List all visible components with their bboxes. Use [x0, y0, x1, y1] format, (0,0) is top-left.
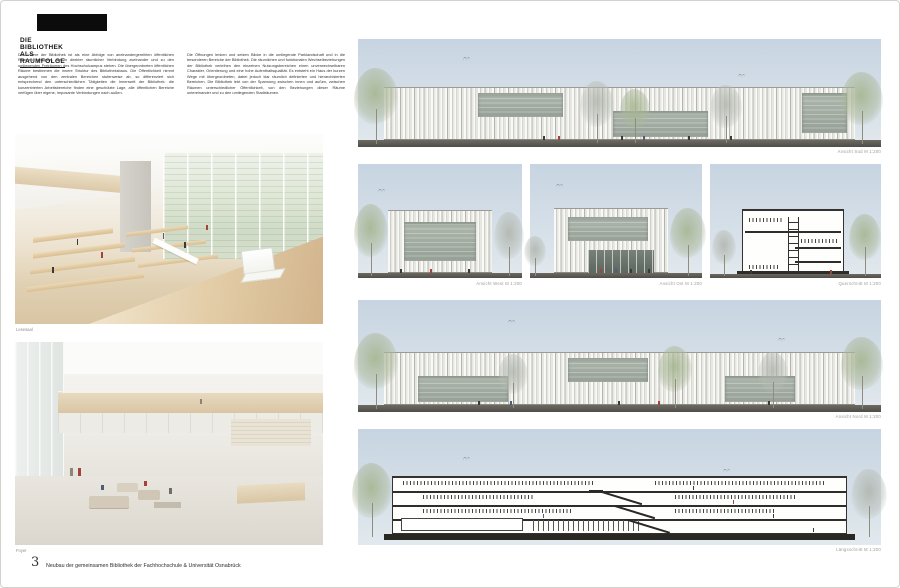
section-building — [392, 476, 847, 534]
armchair — [138, 490, 160, 500]
person-figure — [163, 233, 165, 239]
elevation-ost — [530, 164, 702, 278]
ground — [358, 405, 881, 412]
person-figure — [630, 269, 632, 273]
bird-mark — [556, 184, 563, 187]
entrance-glazing — [588, 250, 654, 273]
shelving-marks — [801, 239, 837, 243]
person-figure — [730, 136, 732, 140]
person-figure — [643, 136, 645, 140]
tree — [658, 346, 692, 408]
tree — [841, 337, 883, 409]
drawing-label: Längsschnitt M 1:200 — [358, 547, 881, 552]
person-figure — [478, 401, 480, 405]
person-figure — [773, 514, 774, 518]
shelving-marks — [423, 495, 533, 499]
floor-slab — [795, 261, 841, 263]
shelving-marks — [655, 481, 825, 485]
person-figure — [200, 399, 202, 404]
glass-band — [404, 222, 476, 261]
shelving-marks — [749, 218, 783, 222]
bird-mark — [463, 457, 470, 460]
intro-column-1: Das Innere der Bibliothek ist als eine A… — [18, 52, 174, 96]
person-figure — [144, 481, 147, 486]
person-figure — [70, 468, 73, 476]
info-counter — [237, 482, 305, 504]
concrete-wall — [120, 161, 151, 252]
person-figure — [813, 528, 814, 532]
tree — [352, 463, 392, 537]
person-figure — [78, 468, 81, 476]
tree — [849, 214, 881, 276]
section-laengs — [358, 429, 881, 545]
bird-mark — [723, 469, 730, 472]
tree — [758, 352, 788, 408]
person-figure — [77, 239, 79, 245]
drawing-label: Ansicht Süd M 1:200 — [358, 149, 881, 154]
person-figure — [400, 269, 402, 273]
tree — [620, 89, 650, 143]
person-figure — [510, 401, 512, 405]
person-figure — [52, 267, 54, 273]
sheet-number: 3 — [31, 555, 39, 570]
presentation-board: DIE BIBLIOTHEK ALS RAUMFOLGE Das Innere … — [0, 0, 900, 588]
person-figure — [658, 401, 660, 405]
tree — [498, 354, 528, 408]
person-figure — [101, 252, 103, 258]
bird-mark — [738, 74, 745, 77]
shelving-marks — [423, 509, 573, 513]
drawing-label: Ansicht West M 1:200 — [358, 281, 522, 286]
coffee-table — [154, 502, 182, 508]
floor-slab — [795, 247, 841, 249]
tree — [494, 212, 524, 276]
rendering-caption: Lesesaal — [16, 327, 33, 332]
person-figure — [688, 136, 690, 140]
person-figure — [101, 485, 104, 490]
rendering-caption: Foyer — [16, 548, 27, 553]
person-figure — [600, 269, 602, 273]
shelving-marks — [403, 481, 593, 485]
person-figure — [768, 401, 770, 405]
person-figure — [621, 136, 623, 140]
sheet-caption: Neubau der gemeinsamen Bibliothek der Fa… — [46, 563, 241, 569]
rendering-foyer — [15, 342, 323, 545]
elevation-nord — [358, 300, 881, 412]
person-figure — [169, 488, 172, 494]
person-figure — [733, 500, 734, 504]
intro-column-2: Die Öffnungen lenken und setzen Blicke i… — [187, 52, 345, 96]
elevation-sued — [358, 39, 881, 147]
person-figure — [558, 136, 560, 140]
shelving-marks — [675, 509, 775, 513]
glass-band — [418, 376, 508, 402]
bird-mark — [378, 189, 385, 192]
shelving-marks — [749, 265, 779, 269]
tree — [354, 204, 388, 276]
stack-room — [533, 520, 643, 531]
person-figure — [543, 514, 544, 518]
bird-mark — [508, 320, 515, 323]
person-figure — [615, 269, 617, 273]
tree — [524, 236, 546, 276]
logo-block — [37, 14, 107, 31]
shelving-marks — [675, 495, 795, 499]
glass-band — [568, 358, 648, 382]
person-figure — [543, 136, 545, 140]
floor-slab — [393, 491, 846, 493]
section-building — [742, 209, 844, 273]
person-figure — [468, 269, 470, 273]
tree — [670, 208, 706, 276]
tree — [580, 81, 614, 143]
drawing-label: Querschnitt M 1:200 — [710, 281, 881, 286]
section-quer — [710, 164, 881, 278]
stair-core — [788, 217, 799, 272]
glass-band — [568, 217, 648, 241]
drawing-label: Ansicht Nord M 1:200 — [358, 414, 881, 419]
tree — [354, 333, 398, 409]
stair-flight — [614, 505, 655, 519]
gallery-wood-band — [58, 393, 323, 413]
elevation-west — [358, 164, 522, 278]
bookshelves — [231, 419, 311, 445]
person-figure — [618, 401, 620, 405]
tree — [851, 469, 887, 537]
person-figure — [430, 269, 432, 273]
bird-mark — [463, 57, 470, 60]
rendering-lesesaal — [15, 134, 323, 324]
hall-room — [401, 518, 523, 531]
tree — [841, 72, 883, 144]
armchair — [117, 483, 139, 492]
sofa — [89, 496, 129, 508]
glass-band — [478, 93, 563, 117]
person-figure — [648, 269, 650, 273]
bird-mark — [778, 338, 785, 341]
person-figure — [830, 270, 832, 274]
person-figure — [750, 270, 752, 274]
tree — [710, 85, 742, 143]
person-figure — [206, 225, 208, 230]
drawing-label: Ansicht Ost M 1:200 — [530, 281, 702, 286]
tree — [354, 68, 398, 144]
tree — [712, 230, 736, 276]
foundation — [384, 534, 855, 540]
person-figure — [693, 486, 694, 490]
person-figure — [184, 242, 186, 248]
stair-flight — [601, 491, 642, 505]
